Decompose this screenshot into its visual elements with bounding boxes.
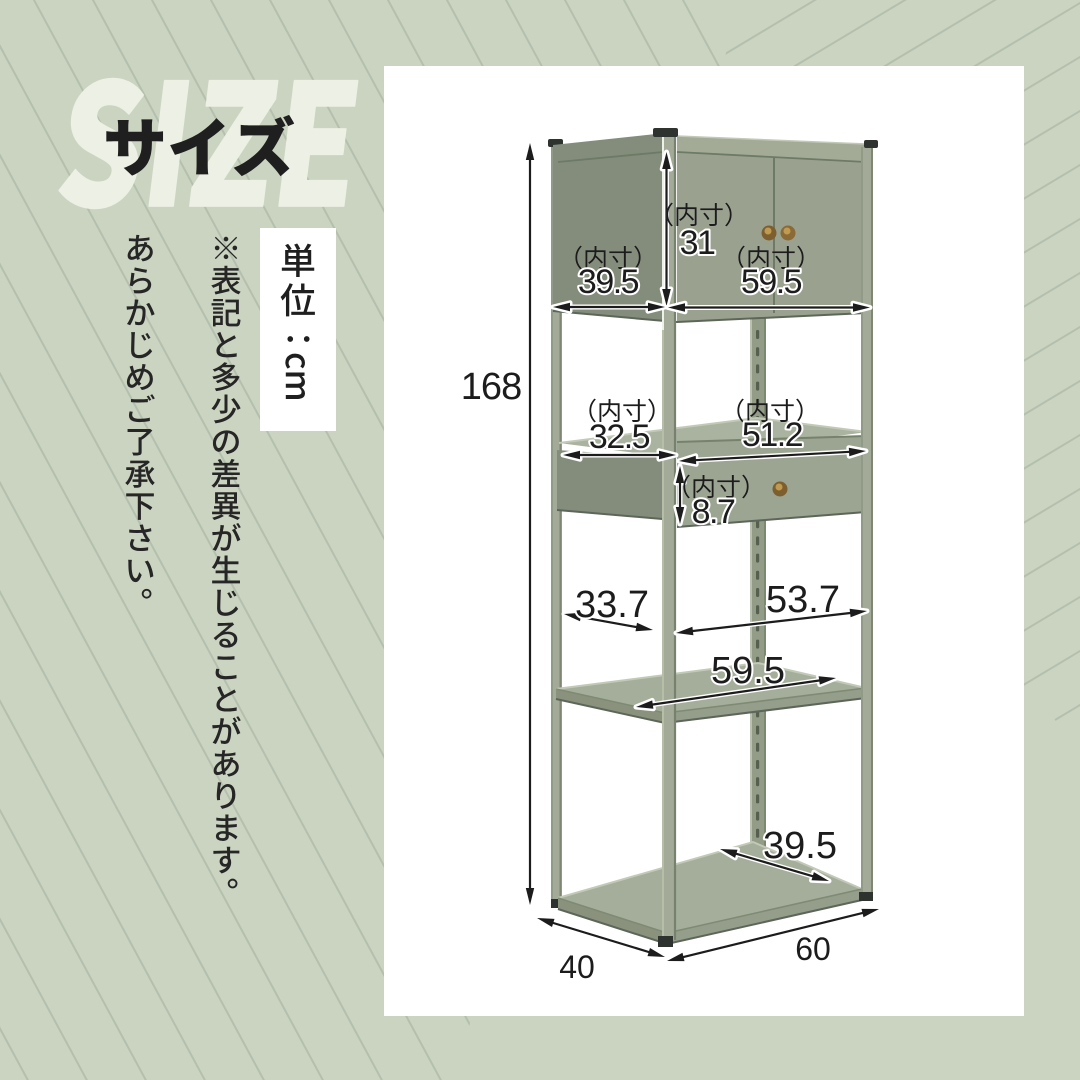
svg-text:59.5: 59.5 [711,650,785,692]
svg-text:31: 31 [680,224,715,262]
svg-text:168: 168 [461,366,521,408]
svg-text:40: 40 [559,949,595,985]
svg-text:33.7: 33.7 [575,584,649,626]
svg-text:60: 60 [795,931,831,967]
svg-text:8.7: 8.7 [692,493,735,531]
svg-text:39.5: 39.5 [578,263,639,301]
svg-text:32.5: 32.5 [589,418,650,456]
svg-text:39.5: 39.5 [763,825,837,867]
svg-text:59.5: 59.5 [741,263,802,301]
svg-text:51.2: 51.2 [742,416,803,454]
svg-text:53.7: 53.7 [766,579,840,621]
